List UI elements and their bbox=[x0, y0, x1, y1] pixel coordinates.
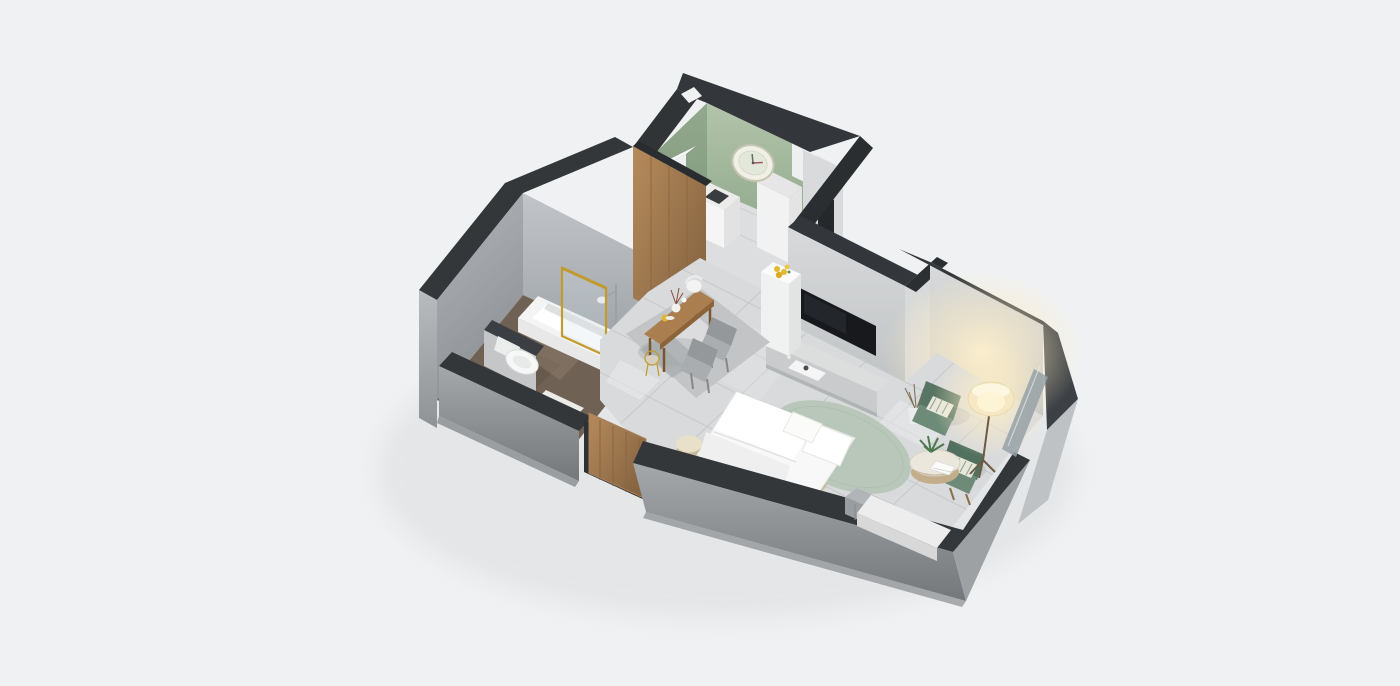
vase bbox=[672, 304, 681, 313]
tray-item bbox=[804, 366, 809, 371]
column-side bbox=[789, 274, 801, 356]
west-wall-outer-face bbox=[419, 290, 437, 428]
plate bbox=[666, 316, 675, 320]
floorplan-render bbox=[0, 0, 1400, 686]
coffee-table bbox=[910, 450, 960, 484]
floorplan-svg bbox=[0, 0, 1400, 686]
cup bbox=[682, 298, 687, 303]
